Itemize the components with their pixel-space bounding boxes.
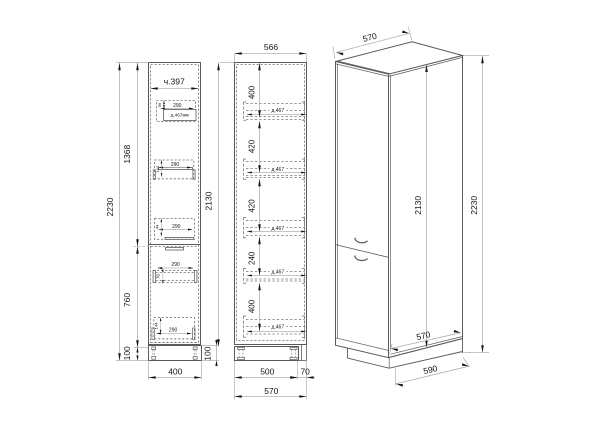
svg-text:д.467мм: д.467мм	[171, 113, 189, 118]
svg-text:70: 70	[300, 367, 310, 377]
svg-text:44: 44	[155, 224, 160, 229]
svg-text:400: 400	[248, 85, 257, 99]
svg-text:2230: 2230	[469, 196, 479, 215]
svg-text:ч.397: ч.397	[164, 77, 185, 87]
svg-text:2130: 2130	[203, 191, 213, 210]
svg-text:д.467: д.467	[271, 108, 284, 114]
svg-text:96: 96	[157, 102, 162, 107]
svg-text:566: 566	[264, 42, 278, 52]
svg-text:д.467: д.467	[271, 270, 284, 276]
svg-text:2230: 2230	[105, 197, 115, 216]
svg-text:420: 420	[248, 199, 257, 213]
svg-text:570: 570	[264, 386, 278, 396]
svg-text:420: 420	[248, 139, 257, 153]
svg-text:400: 400	[168, 367, 182, 377]
svg-text:400: 400	[248, 299, 257, 313]
svg-text:290: 290	[169, 327, 178, 333]
svg-text:290: 290	[171, 262, 180, 268]
svg-text:70: 70	[155, 274, 160, 279]
svg-text:2130: 2130	[413, 196, 423, 215]
svg-text:290: 290	[173, 103, 182, 109]
svg-text:240: 240	[248, 251, 257, 265]
svg-text:760: 760	[122, 293, 132, 307]
svg-text:д.467: д.467	[271, 226, 284, 232]
svg-text:290: 290	[172, 224, 181, 230]
svg-text:100: 100	[122, 346, 132, 360]
svg-text:1368: 1368	[122, 144, 132, 163]
svg-text:д.467: д.467	[271, 167, 284, 173]
svg-text:д.467: д.467	[271, 325, 284, 331]
svg-text:500: 500	[260, 367, 274, 377]
svg-text:100: 100	[203, 346, 213, 360]
